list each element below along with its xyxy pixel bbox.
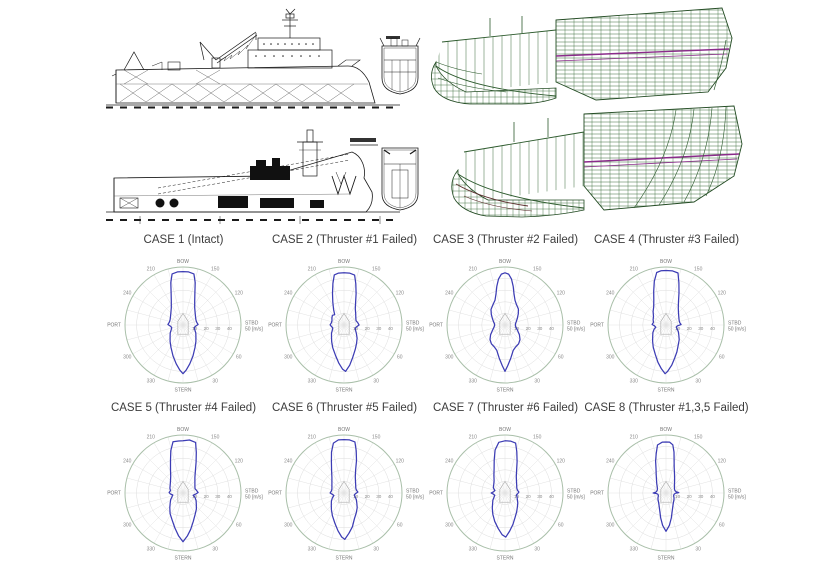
angle-tick-label: 120 bbox=[235, 290, 244, 296]
angle-tick-label: 60 bbox=[719, 523, 725, 529]
port-label: PORT bbox=[107, 491, 121, 497]
angle-tick-label: 330 bbox=[308, 378, 317, 384]
ship-profile-drawing-upper bbox=[100, 6, 422, 118]
dp-capability-polar-chart: 1501206030330300240210BOWSTERNPORTSTBD50… bbox=[586, 417, 747, 568]
radial-tick-label: 20 bbox=[204, 494, 210, 499]
units-label: 50 [m/s] bbox=[245, 495, 263, 501]
radial-tick-label: 20 bbox=[365, 326, 371, 331]
angle-tick-label: 300 bbox=[123, 523, 132, 529]
angle-tick-label: 150 bbox=[372, 435, 381, 441]
angle-tick-label: 210 bbox=[308, 267, 317, 273]
angle-tick-label: 30 bbox=[534, 378, 540, 384]
units-label: 50 [m/s] bbox=[406, 327, 424, 333]
angle-tick-label: 60 bbox=[397, 355, 403, 361]
angle-tick-label: 120 bbox=[718, 290, 727, 296]
angle-tick-label: 60 bbox=[236, 355, 242, 361]
dp-capability-polar-chart: 1501206030330300240210BOWSTERNPORTSTBD50… bbox=[103, 249, 264, 400]
angle-tick-label: 240 bbox=[445, 458, 454, 464]
radial-tick-label: 20 bbox=[526, 494, 532, 499]
dp-capability-polar-chart: 1501206030330300240210BOWSTERNPORTSTBD50… bbox=[264, 417, 425, 568]
units-label: 50 [m/s] bbox=[406, 495, 424, 501]
angle-tick-label: 240 bbox=[123, 290, 132, 296]
dp-capability-plots: CASE 1 (Intact)1501206030330300240210BOW… bbox=[103, 232, 747, 568]
angle-tick-label: 120 bbox=[235, 458, 244, 464]
case-title: CASE 6 (Thruster #5 Failed) bbox=[272, 400, 417, 417]
angle-tick-label: 330 bbox=[308, 546, 317, 552]
bow-label: BOW bbox=[338, 259, 350, 265]
angle-tick-label: 300 bbox=[284, 523, 293, 529]
angle-tick-label: 60 bbox=[397, 523, 403, 529]
case-title: CASE 4 (Thruster #3 Failed) bbox=[594, 232, 739, 249]
bow-label: BOW bbox=[338, 427, 350, 433]
angle-tick-label: 330 bbox=[469, 378, 478, 384]
radial-tick-label: 40 bbox=[549, 326, 555, 331]
radial-tick-label: 20 bbox=[365, 494, 371, 499]
angle-tick-label: 300 bbox=[284, 355, 293, 361]
angle-tick-label: 30 bbox=[212, 546, 218, 552]
bow-label: BOW bbox=[177, 427, 189, 433]
radial-tick-label: 40 bbox=[388, 494, 394, 499]
angle-tick-label: 150 bbox=[694, 435, 703, 441]
angle-tick-label: 300 bbox=[445, 523, 454, 529]
angle-tick-label: 150 bbox=[211, 267, 220, 273]
radial-tick-label: 40 bbox=[388, 326, 394, 331]
figure-canvas: CASE 1 (Intact)1501206030330300240210BOW… bbox=[0, 0, 822, 587]
ship-profile-drawing-lower bbox=[100, 118, 422, 230]
radial-tick-label: 30 bbox=[698, 494, 704, 499]
ship-drawings-panel bbox=[100, 6, 422, 230]
angle-tick-label: 30 bbox=[212, 378, 218, 384]
case-title: CASE 8 (Thruster #1,3,5 Failed) bbox=[584, 400, 748, 417]
stern-label: STERN bbox=[658, 556, 675, 562]
hull-wireframe-panel bbox=[420, 2, 742, 230]
bow-label: BOW bbox=[660, 259, 672, 265]
case-title: CASE 5 (Thruster #4 Failed) bbox=[111, 400, 256, 417]
hull-wireframe-model-lower bbox=[444, 104, 744, 224]
angle-tick-label: 120 bbox=[396, 458, 405, 464]
angle-tick-label: 120 bbox=[557, 458, 566, 464]
angle-tick-label: 300 bbox=[606, 523, 615, 529]
radial-tick-label: 20 bbox=[204, 326, 210, 331]
angle-tick-label: 240 bbox=[284, 458, 293, 464]
angle-tick-label: 330 bbox=[630, 546, 639, 552]
port-label: PORT bbox=[268, 323, 282, 329]
port-label: PORT bbox=[268, 491, 282, 497]
polar-plot-case-3: CASE 3 (Thruster #2 Failed)1501206030330… bbox=[425, 232, 586, 400]
angle-tick-label: 150 bbox=[211, 435, 220, 441]
case-title: CASE 1 (Intact) bbox=[144, 232, 224, 249]
port-label: PORT bbox=[107, 323, 121, 329]
dp-capability-polar-chart: 1501206030330300240210BOWSTERNPORTSTBD50… bbox=[264, 249, 425, 400]
radial-tick-label: 30 bbox=[376, 494, 382, 499]
radial-tick-label: 40 bbox=[549, 494, 555, 499]
angle-tick-label: 330 bbox=[630, 378, 639, 384]
angle-tick-label: 30 bbox=[373, 546, 379, 552]
polar-plot-case-1: CASE 1 (Intact)1501206030330300240210BOW… bbox=[103, 232, 264, 400]
bow-label: BOW bbox=[499, 259, 511, 265]
bow-label: BOW bbox=[660, 427, 672, 433]
radial-tick-label: 30 bbox=[698, 326, 704, 331]
dp-capability-polar-chart: 1501206030330300240210BOWSTERNPORTSTBD50… bbox=[103, 417, 264, 568]
units-label: 50 [m/s] bbox=[567, 495, 585, 501]
angle-tick-label: 210 bbox=[469, 267, 478, 273]
angle-tick-label: 240 bbox=[606, 290, 615, 296]
radial-tick-label: 30 bbox=[537, 326, 543, 331]
bow-label: BOW bbox=[177, 259, 189, 265]
angle-tick-label: 120 bbox=[396, 290, 405, 296]
angle-tick-label: 120 bbox=[557, 290, 566, 296]
angle-tick-label: 210 bbox=[308, 435, 317, 441]
angle-tick-label: 330 bbox=[147, 546, 156, 552]
stern-label: STERN bbox=[175, 556, 192, 562]
angle-tick-label: 240 bbox=[123, 458, 132, 464]
angle-tick-label: 150 bbox=[372, 267, 381, 273]
polar-plot-case-8: CASE 8 (Thruster #1,3,5 Failed)150120603… bbox=[586, 400, 747, 568]
dp-capability-polar-chart: 1501206030330300240210BOWSTERNPORTSTBD50… bbox=[425, 249, 586, 400]
angle-tick-label: 60 bbox=[558, 355, 564, 361]
bow-label: BOW bbox=[499, 427, 511, 433]
angle-tick-label: 210 bbox=[630, 267, 639, 273]
angle-tick-label: 30 bbox=[695, 378, 701, 384]
radial-tick-label: 40 bbox=[710, 326, 716, 331]
angle-tick-label: 30 bbox=[373, 378, 379, 384]
stern-label: STERN bbox=[336, 556, 353, 562]
radial-tick-label: 10 bbox=[675, 494, 681, 499]
angle-tick-label: 150 bbox=[533, 435, 542, 441]
radial-tick-label: 20 bbox=[687, 326, 693, 331]
units-label: 50 [m/s] bbox=[728, 495, 746, 501]
dp-capability-polar-chart: 1501206030330300240210BOWSTERNPORTSTBD50… bbox=[425, 417, 586, 568]
polar-plot-case-6: CASE 6 (Thruster #5 Failed)1501206030330… bbox=[264, 400, 425, 568]
angle-tick-label: 30 bbox=[695, 546, 701, 552]
radial-tick-label: 40 bbox=[710, 494, 716, 499]
angle-tick-label: 60 bbox=[236, 523, 242, 529]
stern-label: STERN bbox=[497, 556, 514, 562]
dp-capability-polar-chart: 1501206030330300240210BOWSTERNPORTSTBD50… bbox=[586, 249, 747, 400]
angle-tick-label: 210 bbox=[147, 435, 156, 441]
angle-tick-label: 210 bbox=[469, 435, 478, 441]
angle-tick-label: 300 bbox=[445, 355, 454, 361]
angle-tick-label: 150 bbox=[533, 267, 542, 273]
angle-tick-label: 210 bbox=[630, 435, 639, 441]
angle-tick-label: 60 bbox=[558, 523, 564, 529]
polar-plot-case-5: CASE 5 (Thruster #4 Failed)1501206030330… bbox=[103, 400, 264, 568]
port-label: PORT bbox=[429, 323, 443, 329]
hull-cross-section-upper bbox=[380, 38, 420, 94]
angle-tick-label: 300 bbox=[606, 355, 615, 361]
radial-tick-label: 40 bbox=[227, 326, 233, 331]
stern-label: STERN bbox=[658, 388, 675, 394]
port-label: PORT bbox=[590, 491, 604, 497]
units-label: 50 [m/s] bbox=[245, 327, 263, 333]
angle-tick-label: 240 bbox=[445, 290, 454, 296]
angle-tick-label: 210 bbox=[147, 267, 156, 273]
units-label: 50 [m/s] bbox=[567, 327, 585, 333]
radial-tick-label: 30 bbox=[215, 326, 221, 331]
polar-plot-case-2: CASE 2 (Thruster #1 Failed)1501206030330… bbox=[264, 232, 425, 400]
stern-label: STERN bbox=[175, 388, 192, 394]
radial-tick-label: 30 bbox=[376, 326, 382, 331]
hull-wireframe-model-upper bbox=[426, 4, 742, 116]
angle-tick-label: 120 bbox=[718, 458, 727, 464]
angle-tick-label: 60 bbox=[719, 355, 725, 361]
polar-plot-case-4: CASE 4 (Thruster #3 Failed)1501206030330… bbox=[586, 232, 747, 400]
case-title: CASE 2 (Thruster #1 Failed) bbox=[272, 232, 417, 249]
radial-tick-label: 40 bbox=[227, 494, 233, 499]
radial-tick-label: 30 bbox=[537, 494, 543, 499]
radial-tick-label: 20 bbox=[526, 326, 532, 331]
port-label: PORT bbox=[590, 323, 604, 329]
angle-tick-label: 30 bbox=[534, 546, 540, 552]
hull-cross-section-lower bbox=[382, 148, 418, 210]
angle-tick-label: 330 bbox=[147, 378, 156, 384]
polar-plot-case-7: CASE 7 (Thruster #6 Failed)1501206030330… bbox=[425, 400, 586, 568]
radial-tick-label: 30 bbox=[215, 494, 221, 499]
radial-tick-label: 20 bbox=[687, 494, 693, 499]
angle-tick-label: 240 bbox=[284, 290, 293, 296]
units-label: 50 [m/s] bbox=[728, 327, 746, 333]
stern-label: STERN bbox=[497, 388, 514, 394]
port-label: PORT bbox=[429, 491, 443, 497]
case-title: CASE 7 (Thruster #6 Failed) bbox=[433, 400, 578, 417]
stern-label: STERN bbox=[336, 388, 353, 394]
angle-tick-label: 240 bbox=[606, 458, 615, 464]
angle-tick-label: 330 bbox=[469, 546, 478, 552]
angle-tick-label: 300 bbox=[123, 355, 132, 361]
case-title: CASE 3 (Thruster #2 Failed) bbox=[433, 232, 578, 249]
angle-tick-label: 150 bbox=[694, 267, 703, 273]
